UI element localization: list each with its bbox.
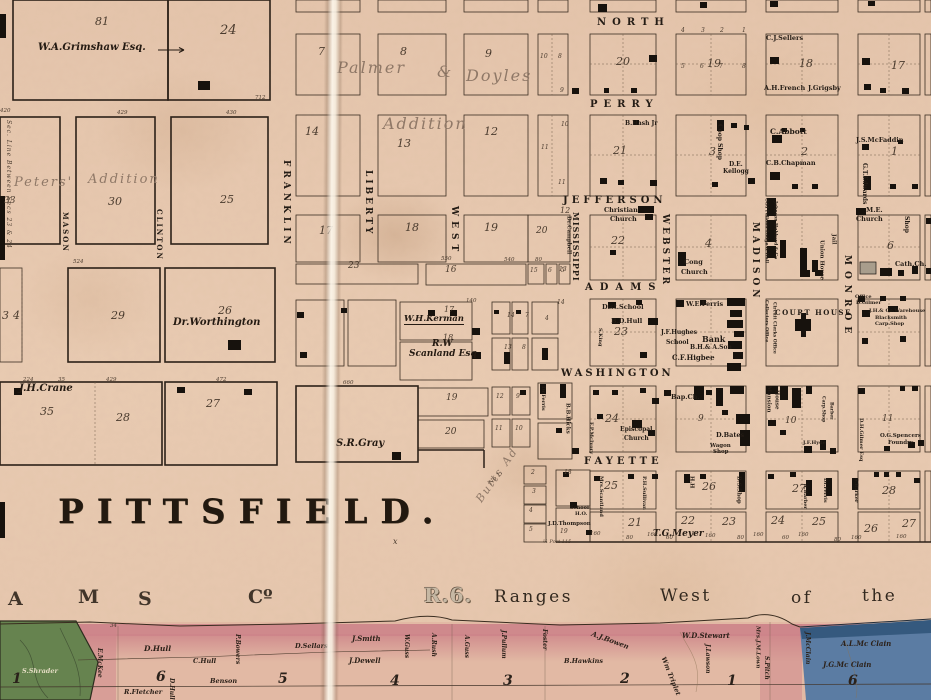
section-number: 2 [620,672,630,686]
place-label: Circuit Clerks Office [771,302,776,360]
survey-number: 140 [466,299,477,305]
owner-name: Dr.Worthington [173,318,260,328]
survey-number: 13 [559,267,567,273]
range-number: R.6. [424,585,472,605]
place-label: A.H.French [764,85,805,92]
place-label: B.D.Hull [611,318,642,325]
block-number: 29 [111,310,125,321]
survey-number: 10 [515,426,523,432]
block-number: 6 [887,240,894,251]
owner-name: W.H.Kerman [404,315,464,325]
block-number: 25 [604,480,618,491]
owner-name: J.H.Crane [19,384,73,394]
block-number: 4 [705,238,712,249]
place-label: Dist.School [602,304,644,311]
place-label: Bap.Ch. [671,394,700,401]
landowner-name: J.G.Mc Clain [823,661,871,668]
place-label: Jail [830,234,836,250]
landowner-name: E.McKee [96,648,102,684]
place-label: J.F.Hughes [661,330,697,336]
place-label: Cong [684,259,703,266]
survey-number: 60 [666,536,673,542]
place-label: S.King [597,328,602,350]
landowner-name: Wm Triplet [660,656,681,696]
survey-number: 4 [545,316,549,322]
survey-number: 2 [531,470,535,476]
survey-number: 160 [851,536,862,542]
landowner-name: A.Rush [430,633,436,663]
block-number: 1 [891,146,898,157]
place-label: Odd Fellows Lodge & Hall [763,198,768,258]
block-number: 14 [305,126,319,137]
place-label: Johnson Hubbard & Co [772,201,777,259]
place-label: Mansion [765,386,771,426]
place-label: W.E.Ferris [686,301,723,308]
landowner-name: A.Guss [463,635,469,663]
section-number: 6 [156,670,166,684]
landowner-name: D.Hull [144,645,171,653]
place-label: D.H.Gilmer Esq [858,418,863,460]
owner-name: T.G.Meyer [653,530,704,539]
landowner-name: D.Hull [168,678,174,700]
survey-number: 19 [560,529,568,535]
range-title-word: the [862,588,897,605]
place-label: B.Hash Jr [625,121,658,127]
survey-number: 14 [507,313,515,319]
block-number: 12 [560,207,570,215]
block-number: 24 [220,24,237,37]
landowner-name: S.Pitch [763,656,769,682]
survey-number: 4 [681,28,685,34]
place-label: F.P.McIvory [588,422,593,458]
block-number: 34 [2,310,24,321]
survey-number: ¼ Post 115 [543,540,571,545]
place-label: Carp.Shop [875,322,904,327]
street-name: FAYETTE [584,457,663,467]
survey-number: 7 [719,64,723,70]
place-label: Christian [604,207,638,214]
place-label: Dr.Ferris [822,478,827,506]
landowner-name: J.McClain [804,632,810,670]
place-label: Kellogg [723,169,749,175]
survey-number: 15 [530,268,538,274]
place-label: Dr.Ferris [540,386,545,416]
survey-number: 80 [626,536,633,542]
place-label: H.O. [575,512,587,517]
block-number: 10 [785,417,796,426]
block-number: 24 [771,515,785,526]
place-label: P.H.Sullivan [641,476,646,528]
place-label: Cath.Ch. [895,261,927,268]
block-number: 25 [812,516,826,527]
block-number: 33 [4,197,15,206]
place-label: Coop Shop [716,124,722,150]
block-number: 8 [400,46,407,57]
block-number: 19 [446,394,457,403]
block-number: 27 [902,518,916,529]
block-number: 24 [605,413,619,424]
street-name: JEFFERSON [563,196,667,206]
place-label: D.Bates [716,432,744,439]
block-number: 28 [882,485,896,496]
landowner-name: A.L.Mc Clain [841,640,891,647]
block-number: 26 [218,305,232,316]
block-number: 18 [405,222,419,233]
landowner-name: Foster [541,629,547,655]
landowner-name: R.Fletcher [124,689,162,696]
owner-name: S.R.Gray [336,439,384,449]
block-number: 23 [722,516,736,527]
street-name: MONROE [842,255,851,339]
survey-number: 540 [504,258,515,264]
section-number: 5 [278,672,288,686]
owner-name: W.A.Grimshaw Esq. [38,43,146,53]
survey-number: x [393,538,398,546]
survey-number: 80 [737,536,744,542]
survey-number: 6 [700,64,704,70]
block-number: 23 [348,262,359,271]
street-name: CLINTON [156,209,163,261]
block-number: 26 [702,481,716,492]
landowner-name: J.Dewell [349,657,381,664]
street-name: MASON [62,212,69,253]
place-label: C.J.Sellers [766,35,803,42]
survey-number: 10 [540,54,548,60]
survey-number: 160 [590,532,601,538]
place-label: House [773,390,779,422]
addition-name: Palmer [337,60,406,76]
block-number: 19 [484,222,498,233]
landowner-name: J.Pullum [500,630,506,662]
street-name: NORTH [597,18,670,28]
survey-number: 11 [558,180,566,186]
place-label: B.S.Shop [735,476,741,506]
survey-number: 9 [560,88,564,94]
survey-number: 7 [525,313,529,319]
place-label: B.H.& A.Son [690,345,732,351]
place-label: Mrs.Scantland [598,476,603,532]
margin-note: Sec. Line Between Secs 23 & 24 [5,120,11,249]
block-number: 22 [611,235,625,246]
survey-number: 1 [742,28,746,34]
place-label: Shop [713,450,729,456]
survey-number: 13 [504,345,512,351]
block-number: 16 [445,266,456,275]
block-number: 20 [616,56,630,67]
map-title: PITTSFIELD. [58,492,446,532]
survey-number: 6 [548,268,552,274]
landowner-name: S.Shrader [22,668,58,675]
survey-number: 14 [557,300,565,306]
survey-number: 420 [0,109,11,115]
place-label: D.Gilmer [856,301,881,306]
landowner-name: Benson [210,678,237,685]
survey-number: 429 [117,111,128,117]
landowner-name: J.Lawson [704,644,710,674]
county-title-letter: M [78,588,99,607]
map-sheet: NORTHPERRYJEFFERSONADAMSWASHINGTONFAYETT… [0,0,931,700]
landowner-name: C.Hull [193,658,216,665]
landowner-name: A.J.Bowen [591,630,630,650]
addition-name: & [437,64,453,80]
survey-number: 8 [558,54,562,60]
place-label: C.Abbott [770,128,807,136]
block-number: 21 [613,145,627,156]
survey-number: 2 [720,28,724,34]
survey-number: 10 [561,122,569,128]
place-label: C.F.Higbee [672,354,715,361]
survey-number: 12 [496,394,504,400]
place-label: B.B.Hicks [564,403,570,453]
block-number: 21 [628,517,642,528]
landowner-name: B.Hawkins [564,658,603,665]
place-label: J.F.Hyde [803,441,826,446]
place-label: Foundry [888,441,913,447]
street-name: ADAMS [585,283,662,293]
survey-number: 80 [535,258,542,264]
addition-name: Doyles [466,68,532,84]
survey-number: 4 [529,508,533,514]
place-label: M.E. [866,207,883,214]
survey-number: 34 [110,624,117,630]
range-title-word: of [791,590,813,607]
survey-number: 11 [541,145,549,151]
landowner-name: Mrs.J.M.Lown [754,626,760,670]
survey-number: 430 [226,111,237,117]
survey-number: 160 [647,533,658,539]
block-number: 17 [891,60,905,71]
survey-number: 9 [516,394,520,400]
survey-number: 160 [753,533,764,539]
section-number: 6 [848,674,858,688]
place-label: J.H.& Co.Warehouse [869,309,925,314]
survey-number: 712 [255,96,266,102]
addition-name: Addition [88,173,160,186]
owner-name: Scanland Esq [409,350,477,359]
survey-number: 160 [798,533,809,539]
place-label: Church [624,436,649,442]
place-label: Collectors Office [763,300,768,358]
survey-number: 160 [896,535,907,541]
survey-number: 224 [23,378,34,384]
range-title-word: Ranges [494,589,573,606]
place-label: G.T.Edwards [861,163,867,195]
place-label: Bank [702,335,725,343]
place-label: Episcopal [620,427,652,433]
place-label: Carp.Shop [820,396,825,432]
county-title-letter: A [8,590,23,609]
block-number: 13 [397,138,411,149]
landowner-name: P.Bowers [234,634,240,670]
place-label: J.D.Thompson [548,522,591,528]
block-number: 26 [864,523,878,534]
place-label: J.S.McFaddin [856,137,903,144]
block-number: 9 [485,48,492,59]
survey-number: 429 [106,378,117,384]
street-name: MISSISSIPPI [572,212,580,282]
landowner-name: W.D.Stewart [682,632,730,639]
landowner-name: J.Smith [352,635,381,642]
survey-number: 160 [705,534,716,540]
block-number: 20 [445,428,456,437]
place-label: Church [610,216,637,223]
block-number: 22 [681,515,695,526]
block-number: 18 [443,334,453,342]
block-number: 28 [116,412,130,423]
survey-number: 35 [58,378,65,384]
range-title-word: West [660,588,712,605]
block-number: 23 [614,326,628,337]
block-number: 35 [40,406,54,417]
place-label: S.Barker [853,478,858,506]
survey-number: 3 [701,28,705,34]
addition-name: Addition [383,116,468,132]
block-number: 2 [801,146,808,157]
landowner-name: W.Guss [403,634,409,666]
survey-number: 60 [782,536,789,542]
place-label: School [666,340,689,346]
place-label: Barber [828,402,833,426]
place-label: A.Barber [802,484,807,512]
place-label: COURT HOUSE [775,309,852,316]
county-title-letter: Cº [248,588,273,607]
survey-number: 472 [216,378,227,384]
addition-name: Peters' [14,176,73,189]
survey-number: 80 [834,538,841,544]
survey-number: 8 [522,345,526,351]
survey-number: 8 [742,64,746,70]
survey-number: 524 [73,260,84,266]
survey-number: 18 [564,470,572,476]
block-number: 20 [536,227,547,236]
section-number: 1 [727,674,737,688]
place-label: Church [681,269,708,276]
section-number: 1 [12,672,22,686]
survey-number: 660 [343,381,354,387]
block-number: 30 [108,196,122,207]
place-label: O.G.Spencers [880,434,921,440]
street-name: FRANKLIN [281,160,290,248]
place-label: C.B.Chapman [766,160,816,167]
county-title-letter: S [138,590,152,609]
block-number: 25 [220,194,234,205]
survey-number: 5 [681,64,685,70]
street-name: MADISON [750,222,759,302]
labels-layer: NORTHPERRYJEFFERSONADAMSWASHINGTONFAYETT… [0,0,931,700]
street-name: WASHINGTON [561,369,674,379]
street-name: WEBSTER [660,214,669,287]
street-name: PERRY [590,100,659,110]
block-number: 27 [206,398,220,409]
place-label: Union House [818,240,824,278]
block-number: 17 [444,306,454,314]
survey-number: 3 [532,489,536,495]
place-label: Dr.Campbell [565,216,571,264]
block-number: 12 [484,126,498,137]
place-label: H.H [688,476,694,492]
street-name: LIBERTY [363,170,372,236]
place-label: Shop [903,216,909,238]
street-name: WEST [449,206,458,256]
survey-number: 550 [441,257,452,263]
survey-number: 5 [529,527,533,533]
place-label: J.Grigsby [808,85,841,92]
block-number: 11 [882,415,893,424]
block-number: 18 [799,58,813,69]
place-label: Church [856,216,883,223]
survey-number: 11 [495,426,503,432]
block-number: 9 [698,415,704,424]
section-number: 4 [390,674,400,688]
section-number: 3 [503,674,513,688]
block-number: 3 [709,146,716,157]
block-number: 81 [95,16,109,27]
